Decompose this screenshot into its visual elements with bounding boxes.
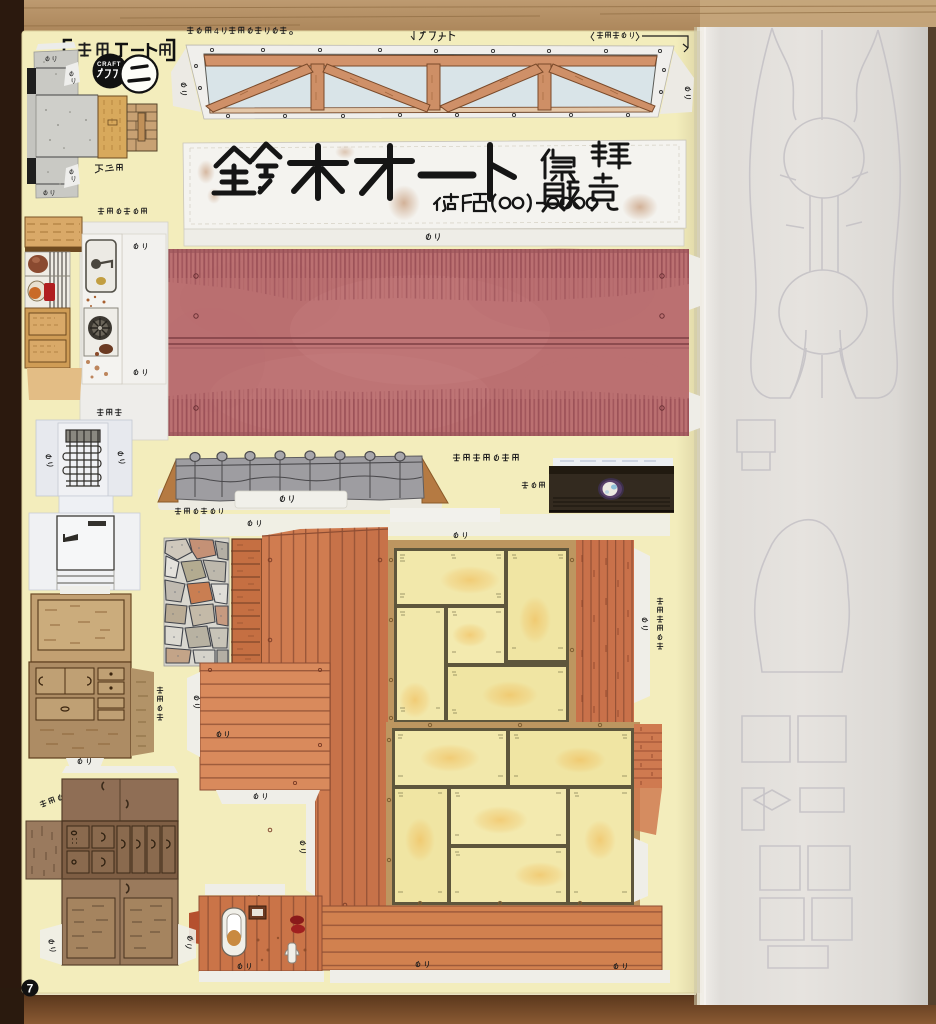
svg-text:CRAFT: CRAFT (97, 61, 121, 68)
svg-text:7: 7 (27, 982, 34, 996)
svg-text:4: 4 (214, 26, 219, 36)
